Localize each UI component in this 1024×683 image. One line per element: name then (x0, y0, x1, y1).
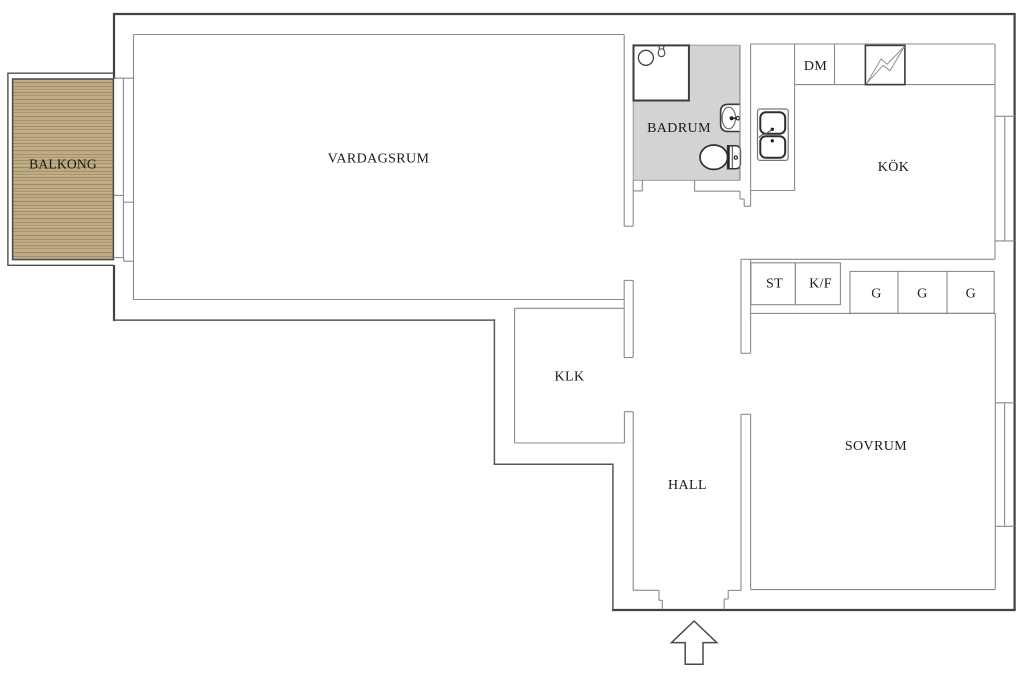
svg-text:K/F: K/F (809, 277, 832, 292)
svg-text:G: G (917, 286, 927, 301)
svg-text:VARDAGSRUM: VARDAGSRUM (328, 151, 430, 166)
svg-text:G: G (966, 286, 976, 301)
svg-text:BADRUM: BADRUM (647, 121, 711, 136)
svg-text:ST: ST (766, 277, 783, 292)
svg-text:SOVRUM: SOVRUM (845, 439, 907, 454)
svg-text:G: G (871, 286, 881, 301)
svg-text:HALL: HALL (668, 478, 707, 493)
svg-text:DM: DM (804, 59, 827, 74)
svg-text:KÖK: KÖK (878, 158, 910, 175)
svg-text:BALKONG: BALKONG (29, 157, 97, 172)
svg-text:KLK: KLK (555, 370, 585, 385)
